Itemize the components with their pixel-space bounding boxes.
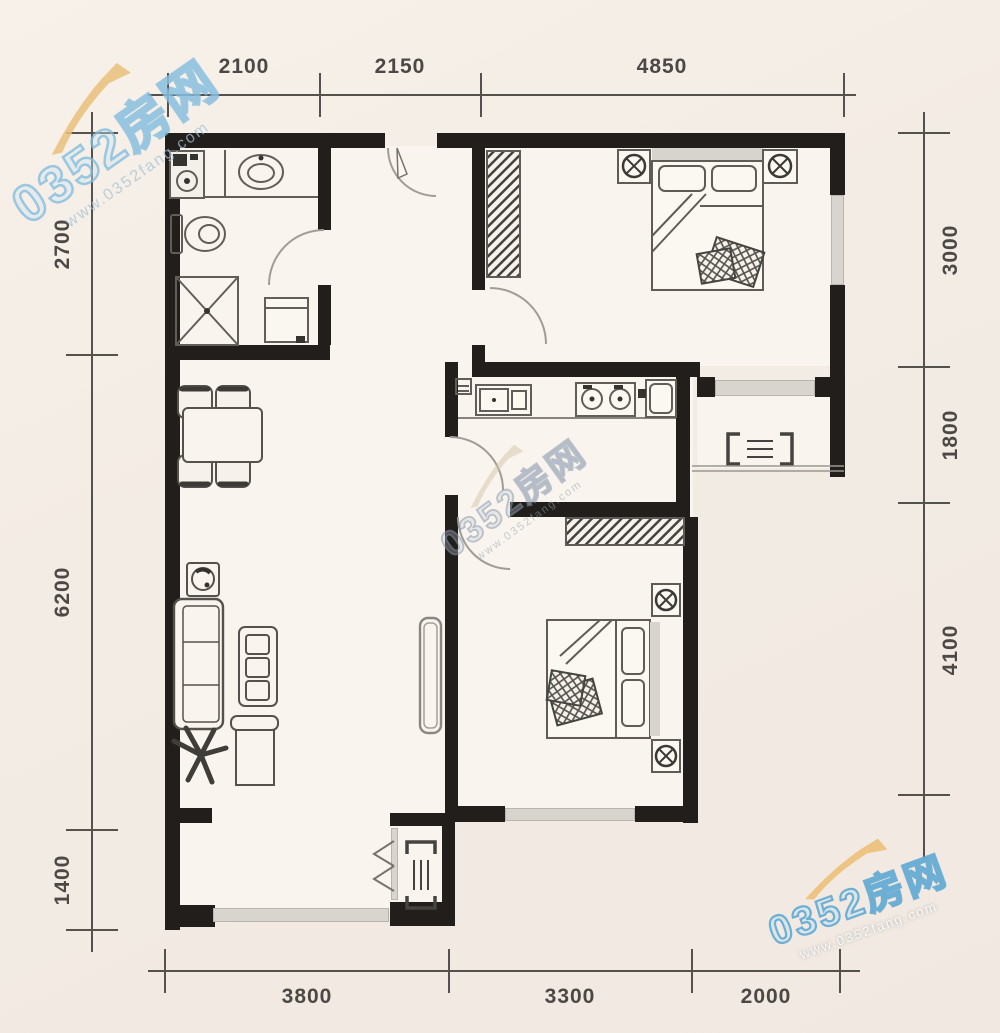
bath-cabinet-icon: [265, 298, 308, 343]
bathroom-fixtures: [170, 150, 324, 345]
bathroom-door-arc: [269, 230, 324, 285]
toilet-icon: [171, 215, 225, 253]
dim-right-2: 1800: [939, 410, 963, 461]
nightstand-lamp-icon-top: [652, 584, 680, 616]
bedroom2: [458, 517, 684, 772]
tick: [691, 949, 693, 993]
nightstand-lamp-icon-left: [618, 150, 650, 183]
dim-left-2: 6200: [51, 567, 75, 618]
tick: [167, 73, 169, 117]
double-bed-icon-bedroom2: [547, 620, 660, 738]
tick: [843, 73, 845, 117]
dim-right-3: 4100: [939, 625, 963, 676]
entry-door-leaf: [397, 148, 407, 178]
tick: [448, 949, 450, 993]
dim-left-3: 1400: [51, 855, 75, 906]
dimension-line-bottom: [148, 970, 860, 972]
balcony: [692, 434, 844, 471]
fridge-icon: [638, 380, 676, 417]
tick: [480, 73, 482, 117]
dimension-line-top: [148, 94, 856, 96]
dim-bottom-1: 3800: [282, 985, 333, 1009]
entry-door: [388, 148, 436, 196]
ac-platform: [374, 841, 435, 908]
tick: [319, 73, 321, 117]
dim-bottom-3: 2000: [741, 985, 792, 1009]
ac-unit-icon-platform: [407, 842, 435, 908]
dim-right-1: 3000: [939, 225, 963, 276]
dim-bottom-2: 3300: [545, 985, 596, 1009]
kitchen-door-arc: [450, 437, 503, 490]
bedroom1: [487, 148, 797, 344]
side-table-plant-icon: [187, 563, 219, 596]
sink-icon: [239, 155, 283, 189]
washing-machine-icon: [170, 151, 204, 198]
armchair-icon: [231, 716, 278, 785]
tick: [66, 929, 118, 931]
dim-top-2: 2150: [375, 55, 426, 79]
floor-plan-canvas: 2100 2150 4850 3800 3300 2000 2700 6200 …: [0, 0, 1000, 1033]
stove-icon: [576, 383, 635, 416]
bedroom1-door-arc: [490, 288, 546, 344]
dimension-line-left: [91, 112, 93, 952]
furniture-overlay: [0, 0, 1000, 1033]
sofa-icon: [174, 599, 223, 729]
tick: [66, 132, 118, 134]
tick: [66, 354, 118, 356]
tick: [898, 366, 950, 368]
tick: [898, 502, 950, 504]
dim-top-1: 2100: [219, 55, 270, 79]
tick: [898, 794, 950, 796]
platform-window-zigzag: [374, 841, 394, 891]
wardrobe-icon-bedroom2: [566, 518, 684, 545]
dining-set-icon: [178, 386, 262, 487]
dim-top-3: 4850: [637, 55, 688, 79]
nightstand-lamp-icon-right: [763, 150, 797, 183]
dimension-line-right: [923, 112, 925, 860]
ac-unit-icon-balcony: [728, 434, 792, 464]
kitchen: [450, 379, 676, 490]
coffee-table-icon: [239, 627, 277, 706]
double-bed-icon-bedroom1: [652, 148, 764, 290]
tv-cabinet-icon: [420, 618, 441, 733]
tick: [898, 132, 950, 134]
dim-left-1: 2700: [51, 219, 75, 270]
shower-icon: [176, 277, 238, 345]
tick: [164, 949, 166, 993]
tick: [839, 949, 841, 993]
living-dining: [174, 386, 441, 785]
wardrobe-icon-bedroom1: [487, 151, 520, 277]
bedroom2-door-arc: [458, 517, 510, 569]
tick: [66, 829, 118, 831]
balcony-rail-line: [692, 466, 844, 471]
nightstand-lamp-icon-bottom: [652, 740, 680, 772]
plant-icon: [174, 728, 226, 782]
kitchen-sink-icon: [476, 385, 531, 415]
